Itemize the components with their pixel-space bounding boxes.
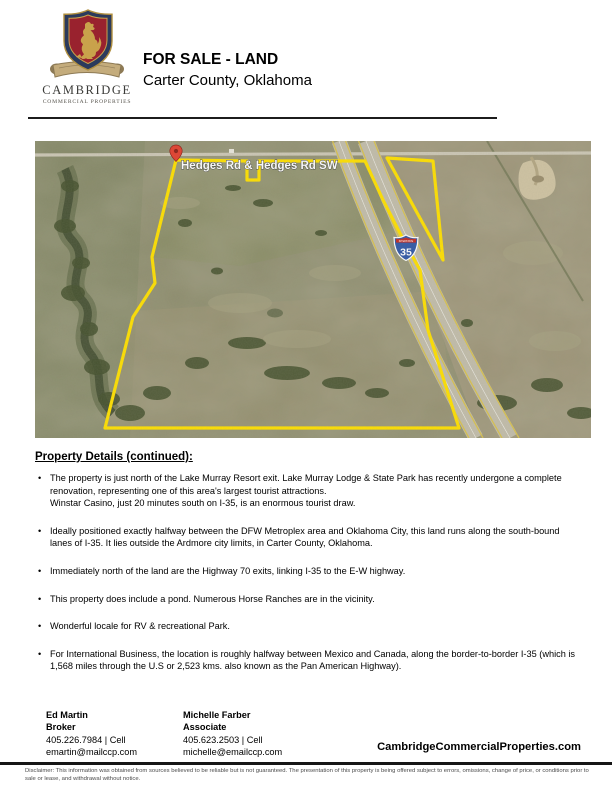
title-block: FOR SALE - LAND Carter County, Oklahoma [143, 51, 312, 89]
contact-email[interactable]: emartin@mailccp.com [46, 746, 137, 758]
logo-subtitle: COMMERCIAL PROPERTIES [42, 99, 132, 105]
disclaimer-text: Disclaimer: This information was obtaine… [25, 768, 591, 783]
contact-phone: 405.623.2503 | Cell [183, 734, 282, 746]
logo-name: CAMBRIDGE [42, 83, 132, 98]
list-item: Immediately north of the land are the Hi… [35, 565, 581, 578]
website-link[interactable]: CambridgeCommercialProperties.com [377, 741, 581, 753]
contact-title: Broker [46, 721, 137, 733]
list-item: Wonderful locale for RV & recreational P… [35, 620, 581, 633]
satellite-imagery: INTERSTATE 35 Hedges Rd & Hedges Rd SW [35, 141, 591, 438]
satellite-map-image: INTERSTATE 35 Hedges Rd & Hedges Rd SW [35, 141, 591, 438]
details-list: The property is just north of the Lake M… [35, 472, 581, 673]
list-item: This property does include a pond. Numer… [35, 593, 581, 606]
property-map: INTERSTATE 35 Hedges Rd & Hedges Rd SW [35, 141, 591, 438]
details-heading: Property Details (continued): [35, 451, 581, 463]
contact-title: Associate [183, 721, 282, 733]
contact-email[interactable]: michelle@emailccp.com [183, 746, 282, 758]
contact-phone: 405.226.7984 | Cell [46, 734, 137, 746]
crest-shield-icon [49, 8, 125, 82]
company-logo: CAMBRIDGE COMMERCIAL PROPERTIES [42, 8, 132, 105]
page-subtitle: Carter County, Oklahoma [143, 72, 312, 89]
contact-card-associate: Michelle Farber Associate 405.623.2503 |… [183, 709, 282, 759]
property-details-section: Property Details (continued): The proper… [35, 451, 581, 688]
list-item: Ideally positioned exactly halfway betwe… [35, 525, 581, 550]
header-divider [28, 117, 497, 119]
page-title: FOR SALE - LAND [143, 51, 312, 69]
shield-icon [64, 10, 112, 70]
list-item: For International Business, the location… [35, 648, 581, 673]
footer-divider [0, 762, 612, 765]
flyer-page: CAMBRIDGE COMMERCIAL PROPERTIES FOR SALE… [0, 0, 612, 792]
contact-name: Ed Martin [46, 709, 137, 721]
list-item: The property is just north of the Lake M… [35, 472, 581, 510]
contact-card-broker: Ed Martin Broker 405.226.7984 | Cell ema… [46, 709, 137, 759]
contact-name: Michelle Farber [183, 709, 282, 721]
